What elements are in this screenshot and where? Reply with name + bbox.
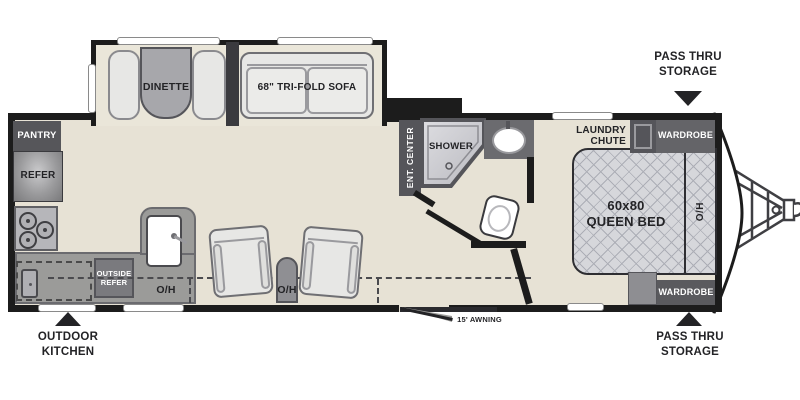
wardrobe-front-bottom: WARDROBE [657,280,715,305]
bath-faucet-icon [506,121,510,129]
bath-sink [492,127,526,154]
burner-icon [19,231,37,249]
rv-floor-plan: PANTRY REFER OUTSIDE REFER O/H O/H EN [0,0,800,400]
window [277,37,373,45]
window [117,37,220,45]
laundry-chute-label-2: CHUTE [591,136,626,147]
kitchen-sink [146,215,182,267]
bath-wall [527,157,534,203]
counter-dashed-line [189,279,191,303]
arrow-up-icon [55,312,81,326]
pantry-cabinet: PANTRY [13,121,61,151]
wardrobe-top-label: WARDROBE [656,120,715,140]
window [567,303,604,311]
arrow-down-icon [674,91,702,106]
slide-divider-wall [226,42,239,126]
burner-icon [36,221,54,239]
door-dashed-line [377,279,379,303]
shower-stall [420,118,488,188]
outdoor-kitchen-appliance [21,269,38,298]
sofa-label: 68" TRI-FOLD SOFA [240,82,374,93]
dinette-label: DINETTE [116,81,216,93]
outside-refer-label-2: REFER [101,278,127,287]
arrow-up-icon [676,312,702,326]
wardrobe-front-top: WARDROBE [656,120,715,153]
bed-overhead-cabinet: O/H [686,148,717,275]
outdoor-kitchen-label: OUTDOOR KITCHEN [18,330,118,359]
burner-icon [19,212,37,230]
stove-cooktop [14,206,58,251]
pass-thru-storage-top-label: PASS THRU STORAGE [638,50,738,79]
overhead-pedestal [276,257,298,303]
window [88,64,96,113]
window [552,112,613,120]
ent-center-label: ENT. CENTER [405,127,415,188]
overhead-cabinet-label-kitchen: O/H [146,284,186,296]
laundry-chute-label-1: LAUNDRY [576,125,626,136]
overhead-cabinet-label-living: O/H [267,284,307,296]
pantry-label: PANTRY [13,121,61,141]
pass-thru-storage-bottom-label: PASS THRU STORAGE [640,330,740,359]
refer-label: REFER [14,152,62,181]
entertainment-center: ENT. CENTER [399,120,421,196]
window [123,304,184,312]
bedroom-cabinet [628,272,657,305]
window [38,304,96,312]
lounge-chair [298,226,364,300]
bed-type-label: QUEEN BED [566,214,686,229]
wardrobe-bottom-label: WARDROBE [657,280,715,297]
bath-bottom-wall [471,241,526,248]
bed-size-label: 60x80 [566,198,686,213]
overhead-cabinet-label-bed: O/H [695,202,706,221]
shower-label: SHOWER [420,141,482,152]
slideout-room: DINETTE 68" TRI-FOLD SOFA [91,40,387,126]
laundry-chute [630,120,656,153]
lounge-chair [208,225,274,299]
refrigerator: REFER [13,151,63,202]
awning-label: 15' AWNING [447,315,512,324]
